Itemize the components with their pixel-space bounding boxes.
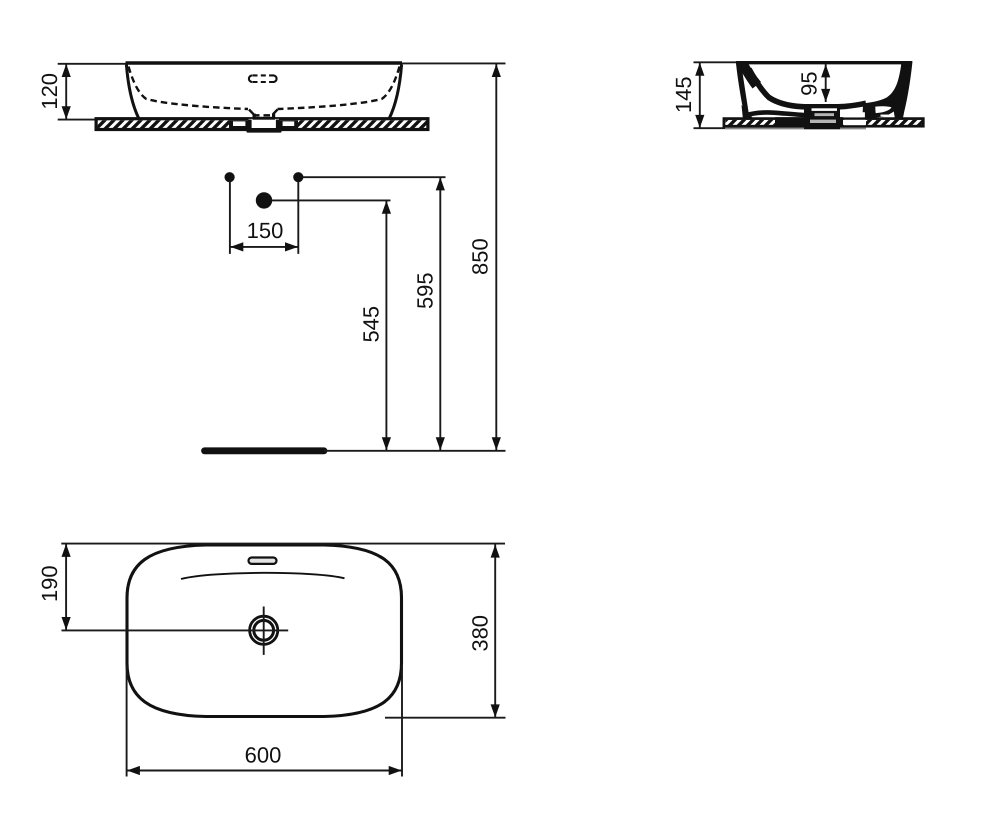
- svg-text:150: 150: [247, 218, 284, 243]
- svg-text:95: 95: [797, 71, 822, 95]
- svg-text:850: 850: [468, 238, 493, 275]
- svg-text:145: 145: [671, 76, 696, 113]
- svg-text:190: 190: [37, 565, 62, 602]
- svg-text:380: 380: [467, 615, 492, 652]
- svg-text:545: 545: [359, 306, 384, 343]
- svg-text:595: 595: [412, 272, 437, 309]
- svg-text:120: 120: [37, 73, 62, 110]
- svg-text:600: 600: [245, 743, 282, 768]
